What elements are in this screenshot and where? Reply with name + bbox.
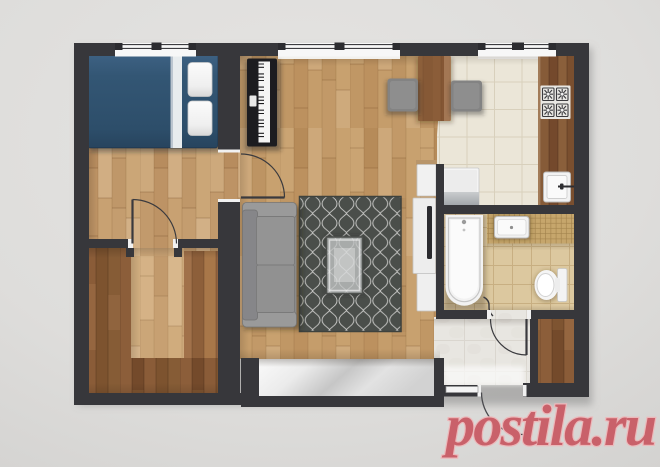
svg-text:postila.ru: postila.ru bbox=[441, 393, 656, 458]
